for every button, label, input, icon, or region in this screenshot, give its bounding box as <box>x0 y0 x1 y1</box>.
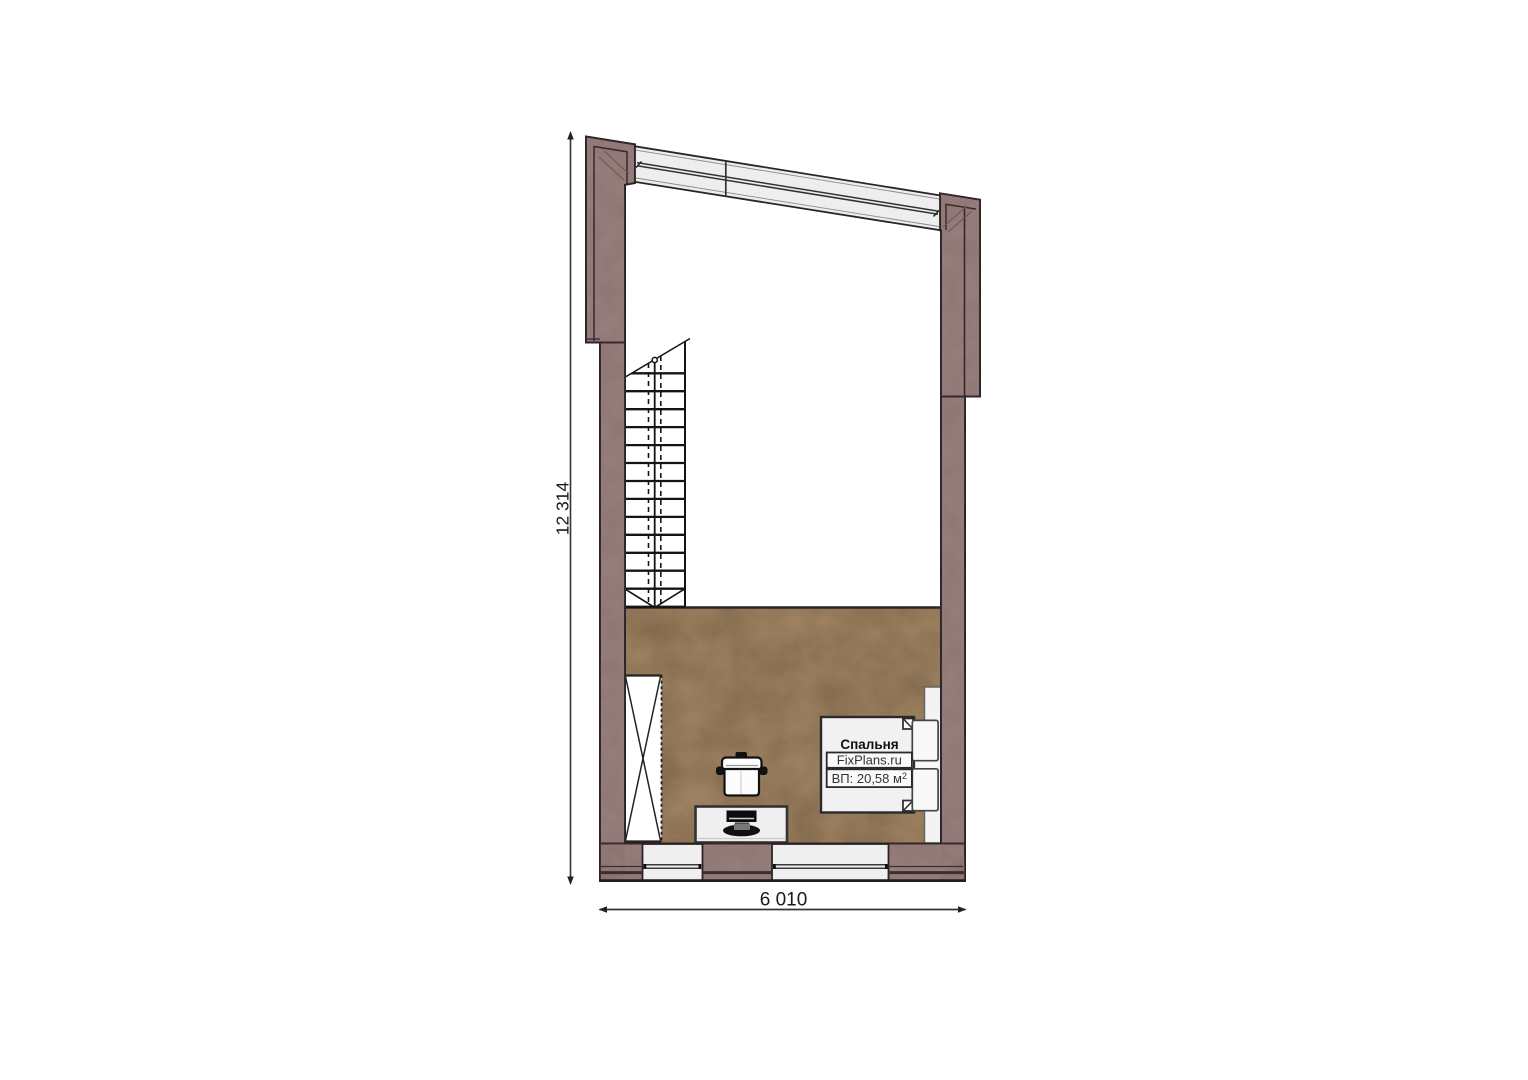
svg-text:ВП: 20,58 м2: ВП: 20,58 м2 <box>832 771 907 786</box>
svg-text:FixPlans.ru: FixPlans.ru <box>837 753 902 768</box>
svg-text:6 010: 6 010 <box>760 890 808 911</box>
svg-text:12 314: 12 314 <box>553 481 573 535</box>
svg-text:Спальня: Спальня <box>840 737 898 752</box>
